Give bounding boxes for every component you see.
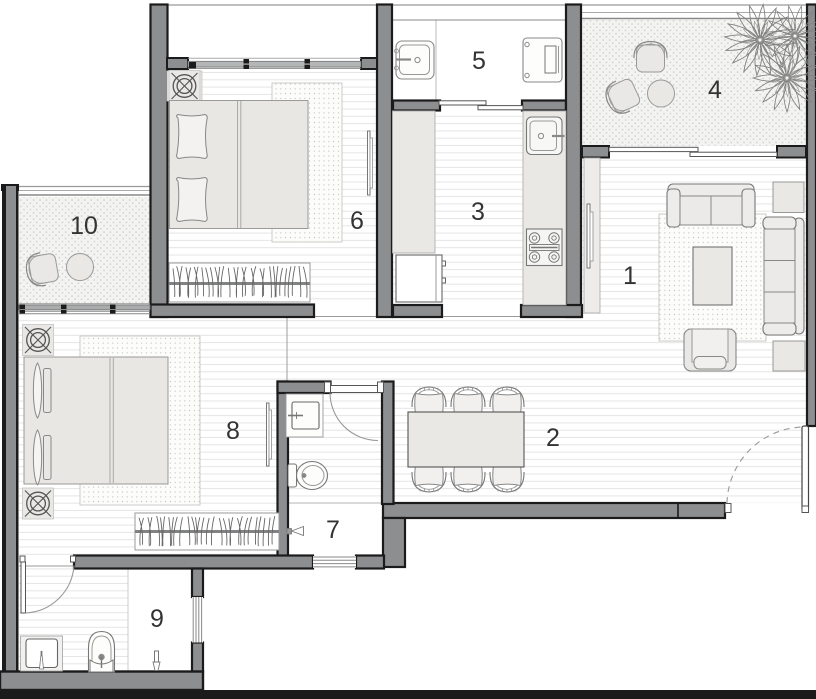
svg-text:1: 1 — [623, 262, 637, 290]
svg-text:5: 5 — [472, 47, 486, 75]
svg-text:10: 10 — [70, 212, 98, 240]
svg-text:2: 2 — [546, 424, 560, 452]
svg-text:6: 6 — [350, 207, 364, 235]
svg-text:9: 9 — [150, 605, 164, 633]
svg-text:8: 8 — [226, 417, 240, 445]
svg-text:4: 4 — [708, 76, 722, 104]
svg-text:3: 3 — [471, 198, 485, 226]
svg-text:7: 7 — [326, 516, 340, 544]
